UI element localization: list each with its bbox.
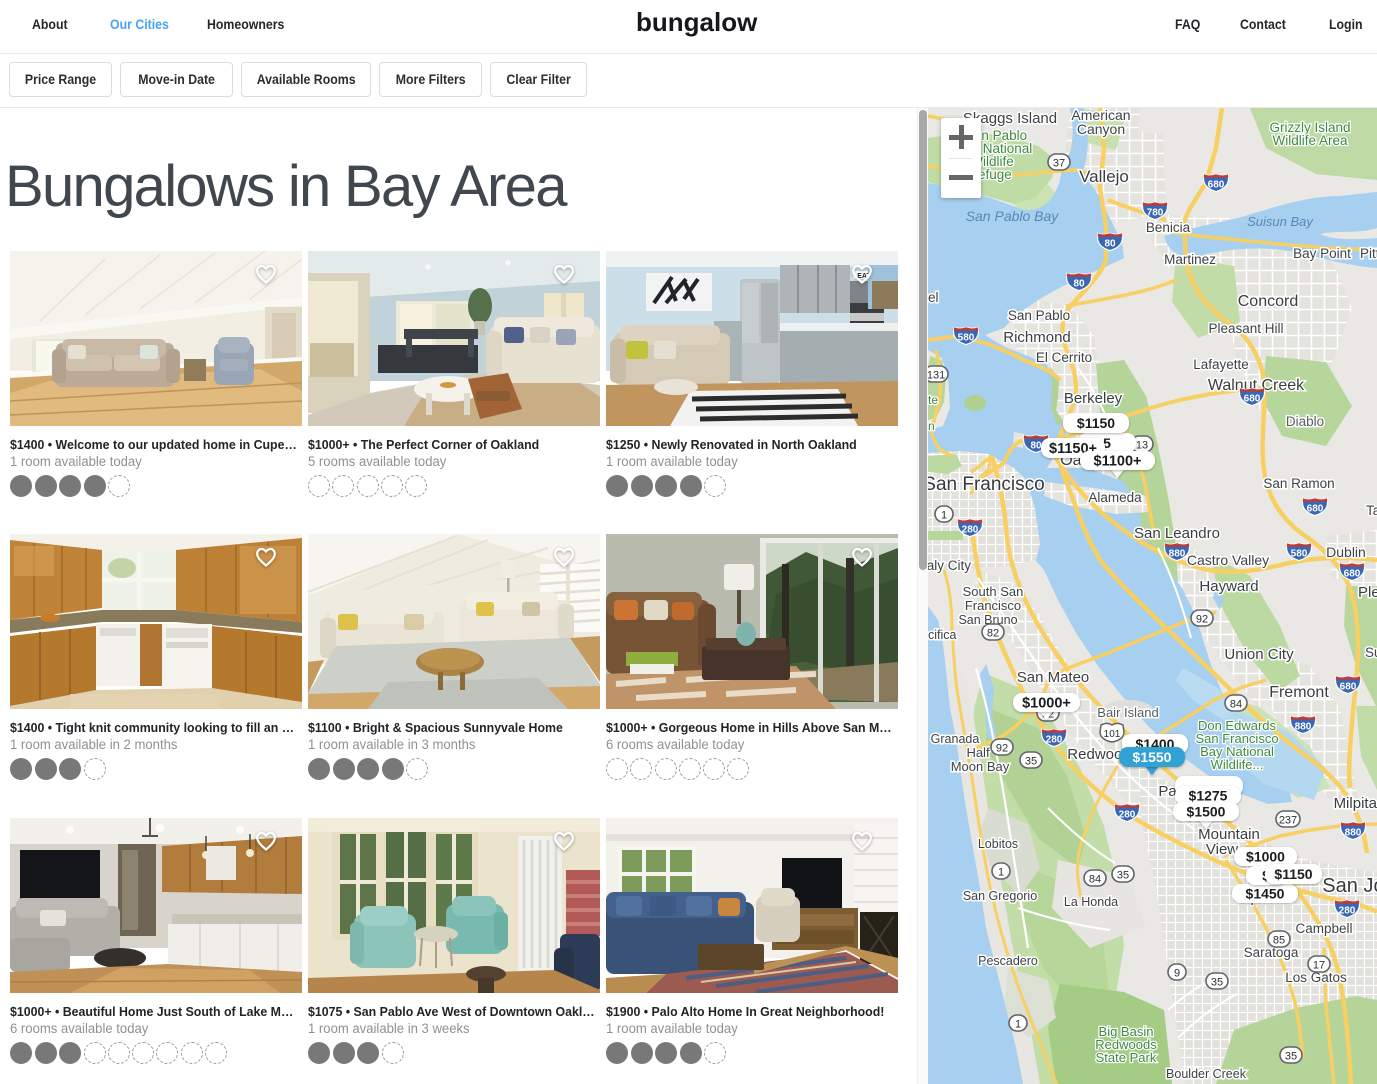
svg-text:Ta: Ta <box>1366 503 1377 518</box>
svg-text:Wildlife Area: Wildlife Area <box>1272 133 1348 148</box>
svg-text:280: 280 <box>1046 735 1063 746</box>
svg-text:$1550: $1550 <box>1133 749 1172 765</box>
svg-text:35: 35 <box>1117 870 1129 882</box>
svg-text:San Jose: San Jose <box>1322 875 1377 897</box>
svg-text:$1100+: $1100+ <box>1094 454 1142 470</box>
svg-text:880: 880 <box>1295 722 1312 733</box>
svg-text:84: 84 <box>1089 874 1101 886</box>
svg-text:Richmond: Richmond <box>1003 329 1071 346</box>
svg-text:680: 680 <box>1244 394 1261 405</box>
svg-text:Campbell: Campbell <box>1295 921 1352 936</box>
svg-text:Sun: Sun <box>1365 645 1377 660</box>
svg-text:Benicia: Benicia <box>1146 220 1191 235</box>
svg-text:Moon Bay: Moon Bay <box>951 759 1010 774</box>
svg-text:San Gregorio: San Gregorio <box>963 889 1037 903</box>
svg-text:Castro Valley: Castro Valley <box>1187 552 1269 568</box>
svg-text:n: n <box>928 419 935 433</box>
svg-text:80: 80 <box>1030 441 1042 452</box>
svg-text:Granada: Granada <box>931 732 980 746</box>
svg-text:Fremont: Fremont <box>1269 684 1329 701</box>
svg-text:80: 80 <box>1104 239 1116 250</box>
svg-text:237: 237 <box>1279 815 1297 827</box>
svg-text:te: te <box>928 393 938 407</box>
svg-text:17: 17 <box>1313 960 1325 972</box>
svg-text:280: 280 <box>1119 810 1136 821</box>
svg-text:880: 880 <box>1345 828 1362 839</box>
svg-text:680: 680 <box>1344 569 1361 580</box>
svg-text:131: 131 <box>928 370 945 382</box>
svg-text:Pittsb: Pittsb <box>1360 246 1377 261</box>
svg-text:Francisco: Francisco <box>965 598 1021 613</box>
svg-text:Union City: Union City <box>1224 646 1294 663</box>
svg-text:82: 82 <box>987 628 999 640</box>
svg-text:$1150: $1150 <box>1077 415 1115 431</box>
svg-text:Bay Point: Bay Point <box>1293 246 1351 261</box>
svg-text:$1000: $1000 <box>1246 849 1285 865</box>
svg-text:35: 35 <box>1211 977 1223 989</box>
svg-text:El Cerrito: El Cerrito <box>1036 350 1092 365</box>
svg-text:680: 680 <box>1340 682 1357 693</box>
svg-text:92: 92 <box>996 743 1008 755</box>
svg-text:680: 680 <box>1307 504 1324 515</box>
svg-text:Diablo: Diablo <box>1286 414 1324 429</box>
svg-text:State Park: State Park <box>1096 1050 1157 1065</box>
svg-text:Dublin: Dublin <box>1326 544 1366 560</box>
svg-text:80: 80 <box>1073 279 1085 290</box>
svg-text:Canyon: Canyon <box>1077 121 1125 137</box>
svg-text:Vallejo: Vallejo <box>1079 167 1129 186</box>
svg-text:9: 9 <box>1174 968 1180 980</box>
svg-text:880: 880 <box>1169 549 1186 560</box>
svg-text:Berkeley: Berkeley <box>1064 390 1123 407</box>
svg-text:13: 13 <box>1136 440 1148 452</box>
svg-text:Daly City: Daly City <box>928 558 971 573</box>
svg-text:101: 101 <box>1104 729 1121 740</box>
svg-text:$1450: $1450 <box>1246 886 1285 902</box>
svg-text:San Pablo: San Pablo <box>1008 308 1070 323</box>
svg-text:Pleas: Pleas <box>1358 584 1377 601</box>
svg-text:Alameda: Alameda <box>1088 490 1142 505</box>
svg-text:Pescadero: Pescadero <box>978 954 1038 968</box>
svg-text:Lobitos: Lobitos <box>978 837 1018 851</box>
svg-text:Bair Island: Bair Island <box>1097 705 1158 720</box>
svg-text:San Mateo: San Mateo <box>1017 669 1090 686</box>
svg-text:580: 580 <box>958 333 975 344</box>
svg-text:San Pablo Bay: San Pablo Bay <box>966 208 1060 224</box>
svg-text:1: 1 <box>998 867 1004 879</box>
svg-text:280: 280 <box>1339 906 1356 917</box>
svg-text:South San: South San <box>963 584 1024 599</box>
svg-text:Half: Half <box>966 745 990 760</box>
svg-text:85: 85 <box>1273 935 1285 947</box>
svg-text:680: 680 <box>1208 180 1225 191</box>
svg-text:Wildlife...: Wildlife... <box>1211 757 1264 772</box>
svg-text:Lafayette: Lafayette <box>1193 357 1249 372</box>
svg-text:Pleasant Hill: Pleasant Hill <box>1208 321 1283 336</box>
svg-text:$1150: $1150 <box>1274 866 1312 882</box>
svg-text:View: View <box>1206 841 1238 858</box>
svg-text:Saratoga: Saratoga <box>1244 945 1299 960</box>
svg-text:Suisun Bay: Suisun Bay <box>1247 214 1314 229</box>
svg-text:el: el <box>928 290 939 305</box>
svg-text:Hayward: Hayward <box>1199 578 1258 595</box>
svg-text:780: 780 <box>1147 208 1164 219</box>
svg-text:35: 35 <box>1285 1051 1297 1063</box>
svg-text:La Honda: La Honda <box>1064 895 1118 909</box>
svg-text:San Leandro: San Leandro <box>1134 525 1220 542</box>
svg-text:92: 92 <box>1196 614 1208 626</box>
svg-text:$1000+: $1000+ <box>1022 696 1071 712</box>
svg-text:$1500: $1500 <box>1187 804 1226 820</box>
svg-text:580: 580 <box>1291 549 1308 560</box>
svg-text:84: 84 <box>1230 699 1242 711</box>
svg-text:37: 37 <box>1053 158 1065 170</box>
svg-text:$1275: $1275 <box>1189 788 1228 804</box>
svg-text:cifica: cifica <box>928 628 957 642</box>
svg-text:Milpitas: Milpitas <box>1334 795 1377 812</box>
svg-text:Martinez: Martinez <box>1164 252 1216 267</box>
svg-text:35: 35 <box>1025 756 1037 768</box>
svg-text:Concord: Concord <box>1238 293 1298 310</box>
svg-text:1: 1 <box>941 510 947 522</box>
svg-text:Boulder Creek: Boulder Creek <box>1166 1067 1247 1081</box>
svg-text:1: 1 <box>1015 1019 1021 1031</box>
svg-text:280: 280 <box>962 525 979 536</box>
svg-text:San Francisco: San Francisco <box>928 474 1045 495</box>
svg-text:San Ramon: San Ramon <box>1263 476 1334 491</box>
